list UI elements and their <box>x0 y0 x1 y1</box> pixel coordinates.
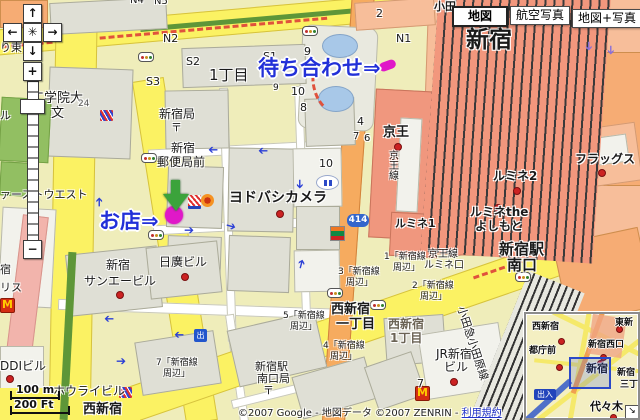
oneway-arrow-icon: ➔ <box>583 41 595 51</box>
map-label: ルミネ口 <box>424 261 464 272</box>
map-label: 10 <box>291 86 305 98</box>
map-label: 新宿 <box>466 28 512 52</box>
inset-overview-map[interactable]: 出入 ↘ 西新宿東新都庁前新宿西口新宿新宿三丁代々木 <box>524 312 640 420</box>
oneway-arrow-icon: ➔ <box>184 224 194 236</box>
company-logo-icon <box>100 110 113 121</box>
map-type-button-hybrid[interactable]: 地図+写真 <box>572 9 640 28</box>
map-label: サンエービル <box>84 275 156 288</box>
map-label: 3「新宿線 <box>338 268 380 277</box>
map-label: 西新宿 <box>83 403 122 417</box>
map-label: ルミネ1 <box>395 218 436 230</box>
map-label: 周辺」 <box>330 353 357 362</box>
map-label: 2 <box>376 8 383 20</box>
store-logo-icon <box>188 195 201 209</box>
inset-station-label: 東新 <box>615 315 633 328</box>
inset-station-label: 新宿西口 <box>588 337 624 350</box>
traffic-light-icon <box>327 288 343 298</box>
map-label: り東 <box>0 42 22 54</box>
oneway-arrow-icon: ➔ <box>116 355 126 367</box>
map-label: 4 <box>357 116 364 128</box>
poi-red-dot-icon <box>6 375 14 383</box>
inset-station-label: 西新宿 <box>532 319 559 332</box>
restaurant-logo-icon <box>201 194 214 207</box>
map-label: 10 <box>319 158 333 170</box>
oneway-arrow-icon: ➔ <box>208 144 218 156</box>
inset-station-dot-icon <box>558 338 565 345</box>
map-label: 9 <box>273 84 279 93</box>
map-label: 京王線 <box>386 150 397 180</box>
poi-red-dot-icon <box>181 273 189 281</box>
map-label: 〒 <box>263 385 274 397</box>
map-label: 1丁目 <box>390 332 422 345</box>
zoom-in-button[interactable]: + <box>23 62 42 81</box>
map-label: 周辺」 <box>420 293 447 302</box>
map-label: ルミネ2 <box>493 170 537 183</box>
poi-red-dot-icon <box>513 187 521 195</box>
map-label: JR新宿 <box>436 348 472 361</box>
map-label: N2 <box>163 33 178 45</box>
scale-tick <box>68 406 70 415</box>
scale-tick <box>10 391 12 400</box>
map-label: ヨドバシカメラ <box>229 191 327 206</box>
copyright: ©2007 Google - 地図データ ©2007 ZENRIN - 利用規約 <box>238 404 502 419</box>
inset-entrance-badge: 出入 <box>534 389 556 400</box>
inset-station-label: 代々木 <box>590 398 623 414</box>
map-label: DDIビル <box>0 360 46 373</box>
map-label: リス <box>0 282 22 294</box>
map-label: S3 <box>146 76 160 88</box>
building <box>49 0 168 35</box>
map-label: 24 <box>78 100 89 109</box>
map-label: N1 <box>396 33 411 45</box>
map-label: 2「新宿線 <box>412 282 454 291</box>
map-label: ホウライビル <box>53 385 125 398</box>
map-label: 南口 <box>507 258 537 274</box>
poi-red-dot-icon <box>276 210 284 218</box>
map-label: ビル <box>444 361 468 374</box>
traffic-light-icon <box>370 300 386 310</box>
map-label: 1「新宿線 <box>384 253 426 262</box>
inset-collapse-button[interactable]: ↘ <box>625 405 639 419</box>
traffic-light-icon <box>138 52 154 62</box>
building <box>294 250 341 293</box>
map-label: 宿 <box>0 264 11 276</box>
poi-red-dot-icon <box>116 291 124 299</box>
map-label: 7 <box>353 132 359 143</box>
map-label: 郵便局前 <box>157 156 205 169</box>
inset-station-label: 三丁 <box>620 377 638 390</box>
pan-down-button[interactable]: ↓ <box>23 42 42 61</box>
building <box>354 0 436 31</box>
pan-center-button[interactable]: ✳ <box>23 23 42 42</box>
inset-station-label: 都庁前 <box>529 343 556 356</box>
map-label: 5「新宿線 <box>283 312 325 321</box>
zoom-slider-handle[interactable] <box>20 99 45 114</box>
seven-eleven-icon <box>330 226 345 241</box>
map-label: 新宿局 <box>159 108 195 121</box>
map-label: 西新宿 <box>388 318 424 331</box>
annotation-meeting: 待ち合わせ⇒ <box>258 52 381 82</box>
traffic-light-icon <box>302 26 318 36</box>
inset-station-dot-icon <box>556 364 563 371</box>
map-label: 8 <box>300 102 307 114</box>
oneway-arrow-icon: ➔ <box>104 313 114 325</box>
pan-up-button[interactable]: ↑ <box>23 4 42 23</box>
mcdonalds-icon: M <box>0 298 15 313</box>
terms-link[interactable]: 利用規約 <box>462 408 502 419</box>
inset-station-dot-icon <box>610 414 617 420</box>
map-label: ル <box>0 110 11 122</box>
annotation-shop: お店⇒ <box>99 205 159 235</box>
map-label: 一丁目 <box>336 318 375 332</box>
map-label: 新宿 <box>106 259 130 272</box>
poi-red-dot-icon <box>598 169 606 177</box>
map-label: N4 <box>130 0 144 7</box>
map-label: 周辺」 <box>393 264 420 273</box>
map-label: 京王線 <box>428 250 458 261</box>
map-label: 南口局 <box>257 373 290 385</box>
map-label: 6 <box>364 134 370 145</box>
copyright-text: ©2007 Google - 地図データ ©2007 ZENRIN - <box>238 408 462 419</box>
map-label: 7「新宿線 <box>156 359 198 368</box>
scale-bar <box>10 412 70 414</box>
map-label: 文 <box>51 107 64 121</box>
map-label: 新宿駅 <box>255 361 288 373</box>
map-label: N5 <box>154 0 168 8</box>
oneway-arrow-icon: ➔ <box>174 329 184 341</box>
map-label: 西新宿 <box>331 303 370 317</box>
bank-logo-icon <box>316 175 339 190</box>
map-label: 周辺」 <box>346 279 373 288</box>
map-label: 日廣ビル <box>159 256 207 269</box>
map-label: S2 <box>186 56 200 68</box>
building <box>227 235 291 293</box>
oneway-arrow-icon: ➔ <box>294 179 306 189</box>
traffic-light-icon <box>141 153 157 163</box>
map-label: 1丁目 <box>209 68 249 84</box>
map-label: フラッグス <box>575 153 635 166</box>
map-label: 周辺」 <box>290 323 317 332</box>
scale-tick <box>58 391 60 400</box>
green-arrow-icon <box>163 180 189 214</box>
map-label: よしもと <box>475 220 523 233</box>
map-label: 周辺」 <box>163 370 190 379</box>
subway-entrance-icon: 出 <box>194 329 207 342</box>
pan-left-button[interactable]: ← <box>3 23 22 42</box>
map-label: 新宿 <box>171 142 195 155</box>
building <box>145 240 222 299</box>
inset-viewport[interactable] <box>569 357 611 389</box>
map-canvas[interactable]: ↑ ← ✳ → ↓ + − 地図 航空写真 地図+写真 100 m 200 Ft… <box>0 0 640 420</box>
map-label: 京王 <box>383 126 409 140</box>
map-label: ルミネthe <box>470 206 528 219</box>
scale-metric-label: 100 m <box>16 383 54 396</box>
scale-tick <box>10 406 12 415</box>
map-label: 4「新宿線 <box>323 342 365 351</box>
scale-imperial-label: 200 Ft <box>14 398 54 411</box>
oneway-arrow-icon: ➔ <box>605 45 617 55</box>
oneway-arrow-icon: ➔ <box>258 145 268 157</box>
pan-right-button[interactable]: → <box>43 23 62 42</box>
map-label: ァーストウエスト <box>0 189 87 201</box>
poi-red-dot-icon <box>450 378 458 386</box>
zoom-out-button[interactable]: − <box>23 240 42 259</box>
map-label: 〒 <box>171 122 182 134</box>
map-type-button-map[interactable]: 地図 <box>452 6 508 27</box>
route-shield-icon: 414 <box>347 214 369 227</box>
map-label: 7 <box>417 378 424 390</box>
map-type-button-aerial[interactable]: 航空写真 <box>510 6 570 25</box>
